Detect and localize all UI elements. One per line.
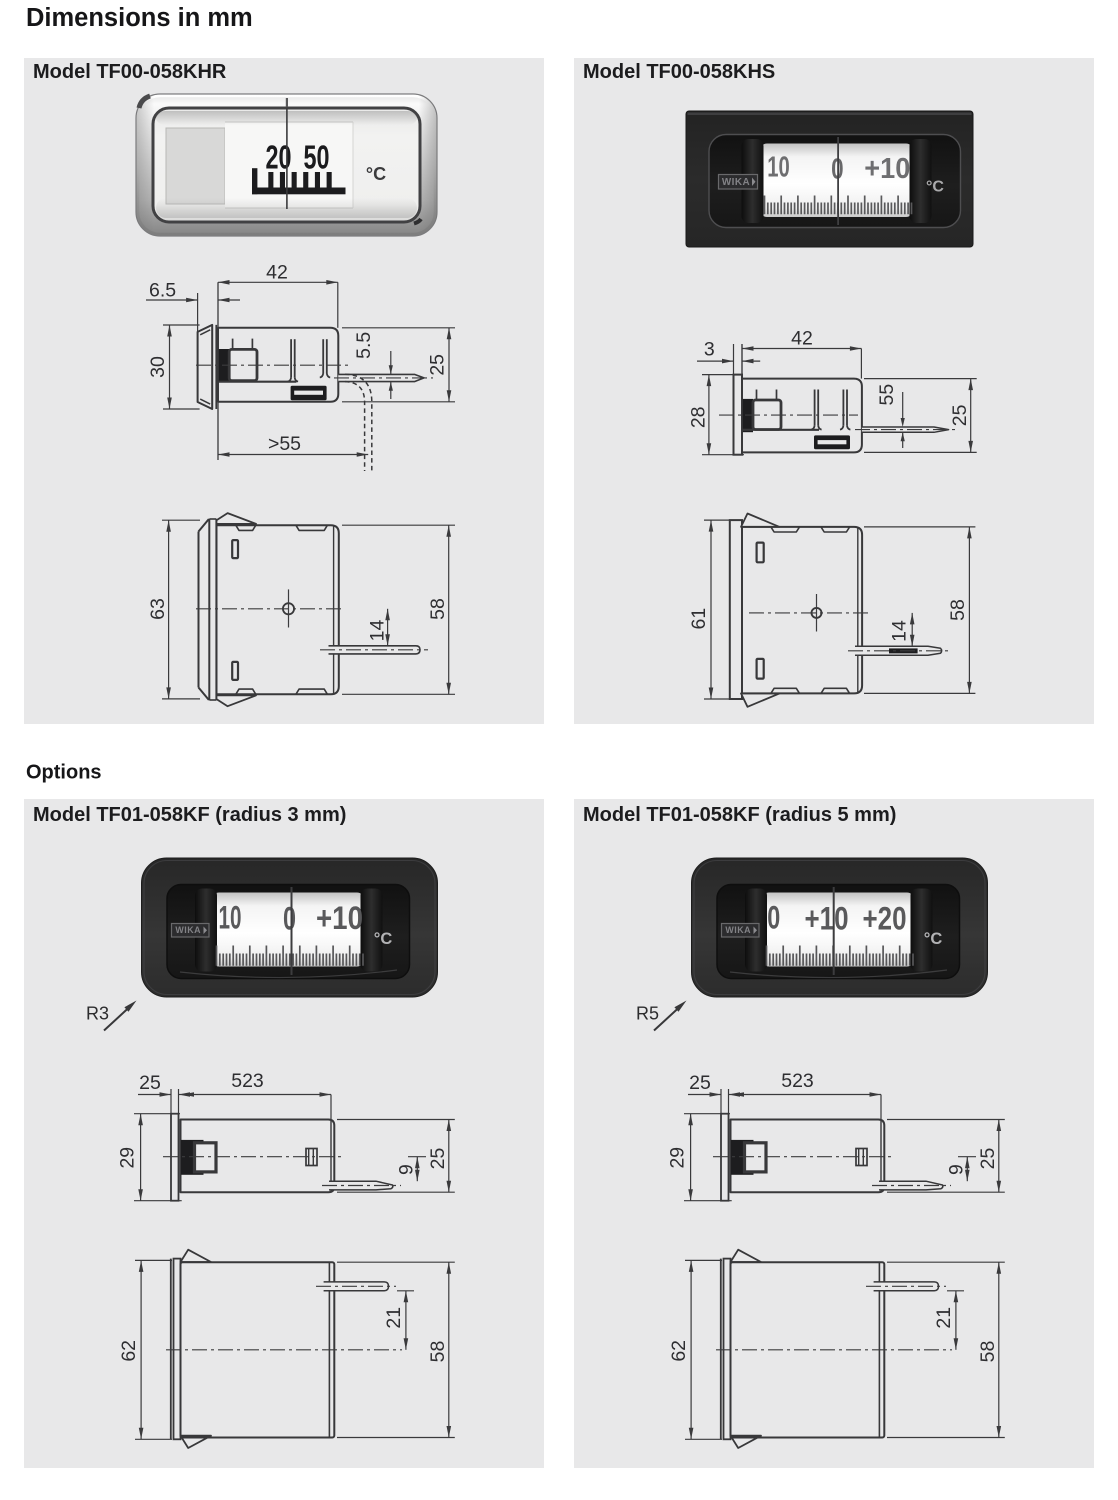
- svg-text:58: 58: [427, 598, 449, 620]
- svg-text:42: 42: [791, 328, 813, 350]
- svg-text:25: 25: [949, 404, 971, 426]
- svg-text:62: 62: [118, 1340, 140, 1362]
- svg-text:14: 14: [366, 620, 388, 642]
- svg-text:°C: °C: [374, 930, 393, 948]
- svg-text:3: 3: [704, 339, 715, 361]
- svg-text:55: 55: [876, 384, 898, 406]
- svg-text:>55: >55: [268, 433, 301, 455]
- svg-text:10: 10: [219, 900, 242, 936]
- svg-text:°C: °C: [366, 164, 386, 184]
- svg-text:29: 29: [667, 1147, 689, 1169]
- svg-text:Dimensions in mm: Dimensions in mm: [26, 4, 253, 32]
- svg-text:Model TF01-058KF (radius 5 mm): Model TF01-058KF (radius 5 mm): [583, 804, 896, 826]
- svg-text:WIKA: WIKA: [722, 177, 750, 188]
- svg-text:42: 42: [266, 261, 288, 283]
- svg-text:21: 21: [383, 1307, 405, 1329]
- svg-text:28: 28: [687, 406, 709, 428]
- svg-text:63: 63: [147, 598, 169, 620]
- svg-text:0: 0: [283, 901, 296, 937]
- svg-text:Model TF00-058KHS: Model TF00-058KHS: [583, 61, 775, 83]
- svg-text:25: 25: [689, 1072, 711, 1094]
- svg-text:°C: °C: [924, 930, 943, 948]
- svg-text:Model TF01-058KF (radius 3 mm): Model TF01-058KF (radius 3 mm): [33, 804, 346, 826]
- svg-text:58: 58: [427, 1341, 449, 1363]
- svg-text:58: 58: [977, 1341, 999, 1363]
- svg-text:+20: +20: [863, 901, 907, 937]
- svg-text:25: 25: [427, 354, 449, 376]
- svg-text:30: 30: [147, 356, 169, 378]
- svg-text:523: 523: [231, 1070, 264, 1092]
- svg-text:61: 61: [688, 608, 710, 630]
- svg-text:25: 25: [427, 1148, 449, 1170]
- svg-text:R5: R5: [636, 1004, 659, 1024]
- svg-text:14: 14: [889, 620, 911, 642]
- svg-text:50: 50: [304, 139, 330, 176]
- svg-text:°C: °C: [926, 179, 944, 196]
- svg-text:+10: +10: [805, 901, 849, 937]
- svg-text:25: 25: [139, 1072, 161, 1094]
- svg-text:5.5: 5.5: [353, 332, 375, 359]
- svg-text:9: 9: [945, 1164, 967, 1175]
- svg-text:+10: +10: [864, 153, 910, 185]
- svg-text:523: 523: [781, 1070, 814, 1092]
- svg-text:Options: Options: [26, 762, 102, 784]
- svg-text:10: 10: [767, 152, 790, 184]
- svg-text:WIKA: WIKA: [175, 925, 201, 935]
- svg-text:0: 0: [767, 900, 780, 936]
- svg-text:25: 25: [977, 1148, 999, 1170]
- svg-text:9: 9: [395, 1164, 417, 1175]
- svg-text:29: 29: [117, 1147, 139, 1169]
- svg-text:Model TF00-058KHR: Model TF00-058KHR: [33, 61, 227, 83]
- svg-text:62: 62: [668, 1340, 690, 1362]
- svg-text:58: 58: [947, 599, 969, 621]
- svg-text:WIKA: WIKA: [725, 925, 751, 935]
- svg-text:6.5: 6.5: [149, 280, 176, 302]
- svg-text:R3: R3: [86, 1004, 109, 1024]
- svg-text:+10: +10: [316, 900, 363, 936]
- svg-text:21: 21: [933, 1307, 955, 1329]
